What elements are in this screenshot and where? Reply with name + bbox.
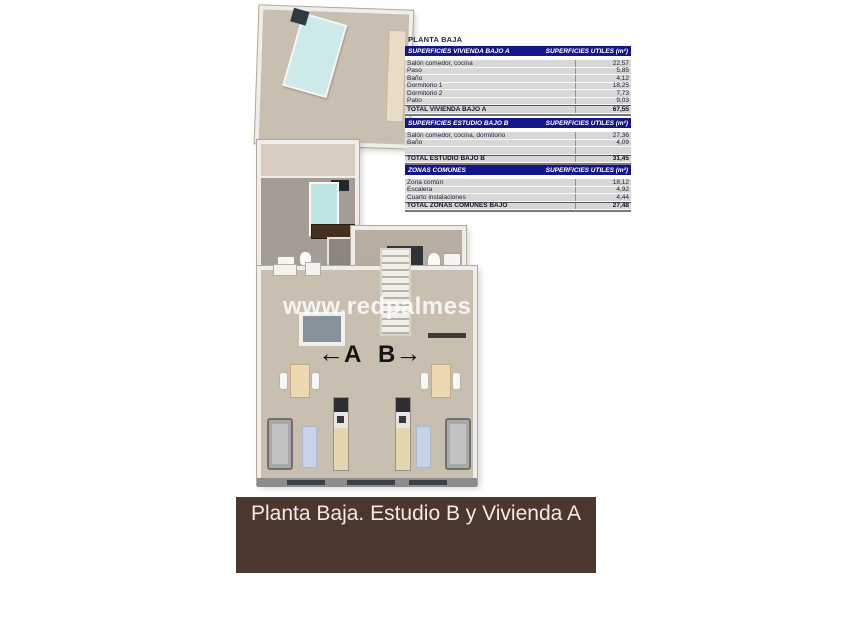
table-header: SUPERFICIES VIVIENDA BAJO A SUPERFICIES …: [405, 46, 631, 56]
unit-a-label: ←A: [318, 338, 361, 369]
table-header: SUPERFICIES ESTUDIO BAJO B SUPERFICIES U…: [405, 118, 631, 128]
chair: [279, 372, 288, 390]
table-row: Cuarto instalaciones4,44: [405, 194, 631, 202]
rug-left: [302, 426, 317, 468]
window: [347, 480, 395, 485]
sofa-right-seat: [450, 424, 466, 464]
kitchen-a: [333, 397, 349, 471]
facade-wall: [257, 478, 477, 487]
chair: [452, 372, 461, 390]
kitchen-b-counter: [396, 398, 410, 412]
table-header-right: SUPERFICIES UTILES (m²): [546, 120, 628, 127]
sofa-right: [445, 418, 471, 470]
radiator: [428, 333, 466, 338]
table-header-right: SUPERFICIES UTILES (m²): [546, 48, 628, 55]
arrow-right-icon: →: [395, 338, 421, 368]
sofa-left-seat: [272, 424, 288, 464]
counter-topleft-2: [305, 262, 321, 276]
table-vivienda-a: SUPERFICIES VIVIENDA BAJO A SUPERFICIES …: [405, 46, 631, 116]
bed-1: [282, 12, 347, 98]
table-a: [290, 364, 310, 398]
table-zonas-comunes: ZONAS COMUNES SUPERFICIES UTILES (m²) Zo…: [405, 165, 631, 212]
unit-b-label: B→: [378, 338, 421, 369]
table-b: [431, 364, 451, 398]
sofa-left: [267, 418, 293, 470]
caption-banner: Planta Baja. Estudio B y Vivienda A: [236, 497, 596, 573]
table-header: ZONAS COMUNES SUPERFICIES UTILES (m²): [405, 165, 631, 175]
table-header-left: SUPERFICIES VIVIENDA BAJO A: [408, 48, 510, 55]
table-total-row: TOTAL ZONAS COMUNES BAJO27,48: [405, 202, 631, 211]
window: [287, 480, 325, 485]
table-header-left: ZONAS COMUNES: [408, 167, 466, 174]
table-header-left: SUPERFICIES ESTUDIO BAJO B: [408, 120, 508, 127]
chair: [420, 372, 429, 390]
table-total-row: TOTAL VIVIENDA BAJO A67,55: [405, 105, 631, 114]
sink-2: [443, 253, 461, 266]
kitchen-a-appliance: [334, 412, 348, 428]
watermark: www.redpalmes: [283, 293, 471, 321]
table-row-blank: [405, 147, 631, 155]
table-estudio-b: SUPERFICIES ESTUDIO BAJO B SUPERFICIES U…: [405, 118, 631, 165]
terrace-strip: [261, 144, 355, 178]
window: [409, 480, 447, 485]
wardrobe: [385, 30, 406, 123]
table-header-right: SUPERFICIES UTILES (m²): [546, 167, 628, 174]
arrow-left-icon: ←: [318, 338, 344, 368]
table-total-row: TOTAL ESTUDIO BAJO B31,45: [405, 155, 631, 164]
kitchen-a-counter: [334, 398, 348, 412]
chair: [311, 372, 320, 390]
kitchen-b: [395, 397, 411, 471]
counter-topleft: [273, 264, 297, 276]
room-bedroom-1: [255, 5, 414, 148]
kitchen-b-appliance: [396, 412, 410, 428]
bed-1-headboard: [290, 8, 309, 26]
stairs: [380, 248, 411, 336]
table-row: Baño4,09: [405, 140, 631, 148]
room-bedroom-2: [257, 140, 359, 275]
rug-right: [416, 426, 431, 468]
plan-title: PLANTA BAJA: [408, 35, 462, 44]
table-row: Patio9,03: [405, 98, 631, 106]
page: ←A B→ www.redpalmes PLANTA BAJA SUPERFIC…: [0, 0, 861, 620]
